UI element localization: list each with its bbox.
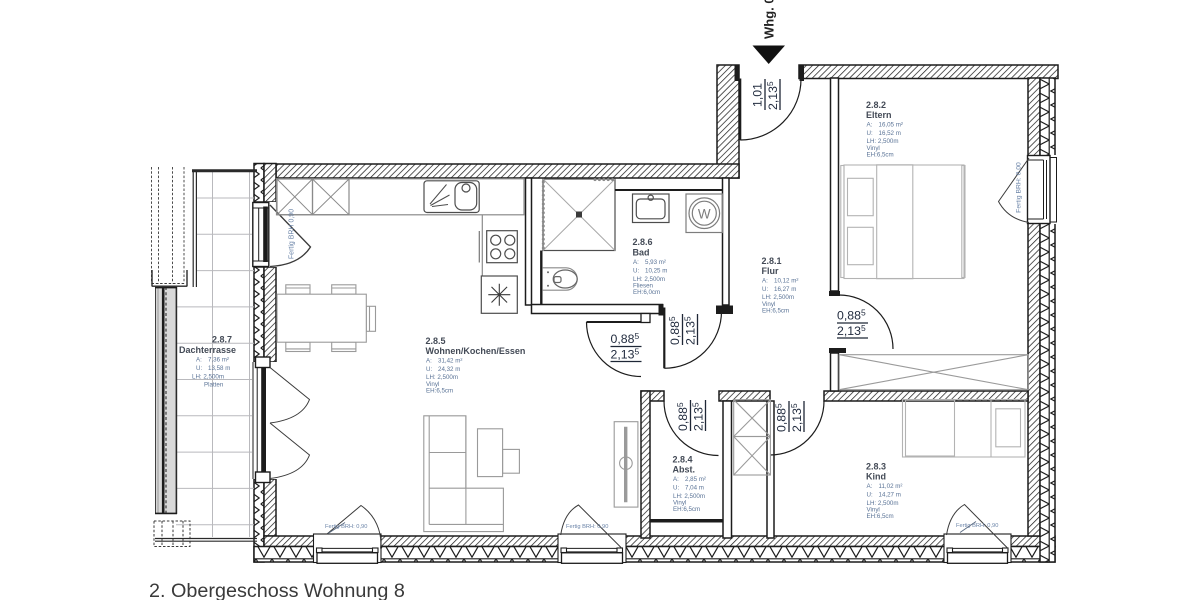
svg-text:24,32 m: 24,32 m	[438, 366, 460, 373]
svg-text:EH:6,5cm: EH:6,5cm	[673, 506, 700, 513]
svg-text:A:: A:	[673, 476, 679, 483]
svg-text:10,25 m: 10,25 m	[645, 267, 667, 274]
svg-text:2.8.6: 2.8.6	[633, 237, 653, 247]
svg-text:Platten: Platten	[204, 381, 224, 388]
svg-text:7,36 m²: 7,36 m²	[208, 357, 229, 364]
svg-text:5,93 m²: 5,93 m²	[645, 259, 666, 266]
svg-text:Fertig BRH 0,90: Fertig BRH 0,90	[289, 209, 296, 259]
svg-text:Flur: Flur	[762, 266, 779, 276]
svg-text:10,12 m²: 10,12 m²	[774, 277, 798, 284]
svg-text:16,27 m: 16,27 m	[774, 286, 796, 293]
svg-text:2.8.3: 2.8.3	[866, 462, 886, 472]
svg-text:7,04 m: 7,04 m	[685, 484, 704, 491]
svg-text:EH:6,5cm: EH:6,5cm	[426, 387, 453, 394]
svg-text:LH: 2,500m: LH: 2,500m	[192, 373, 224, 380]
svg-text:2.8.1: 2.8.1	[762, 256, 782, 266]
svg-text:U:: U:	[762, 286, 768, 293]
svg-text:Abst.: Abst.	[673, 465, 696, 475]
svg-text:2,85 m²: 2,85 m²	[685, 476, 706, 483]
svg-text:A:: A:	[867, 483, 873, 490]
svg-text:A:: A:	[633, 259, 639, 266]
svg-text:EH:6,0cm: EH:6,0cm	[633, 289, 660, 296]
svg-text:Fertig BRH: 0,90: Fertig BRH: 0,90	[956, 523, 998, 529]
svg-text:1,01: 1,01	[751, 83, 765, 107]
svg-text:A:: A:	[426, 357, 432, 364]
svg-text:U:: U:	[196, 365, 202, 372]
svg-text:Bad: Bad	[633, 248, 650, 258]
svg-text:U:: U:	[673, 484, 679, 491]
svg-text:EH:6,5cm: EH:6,5cm	[867, 151, 894, 158]
svg-text:U:: U:	[633, 267, 639, 274]
svg-text:U:: U:	[867, 491, 873, 498]
svg-text:2.8.2: 2.8.2	[866, 100, 886, 110]
svg-text:Fertig BRH: 0,00: Fertig BRH: 0,00	[1016, 162, 1023, 213]
svg-text:U:: U:	[426, 366, 432, 373]
svg-text:EH:6,5cm: EH:6,5cm	[867, 513, 894, 520]
svg-text:Whg. 08: Whg. 08	[762, 0, 777, 39]
svg-text:Dachterrasse: Dachterrasse	[179, 345, 236, 355]
svg-text:A:: A:	[762, 277, 768, 284]
svg-text:U:: U:	[867, 130, 873, 137]
svg-text:W: W	[698, 207, 711, 222]
svg-text:2.8.7: 2.8.7	[212, 335, 232, 345]
svg-text:Fertig BRH: 0,90: Fertig BRH: 0,90	[325, 524, 367, 530]
svg-text:Fertig BRH: 0,90: Fertig BRH: 0,90	[566, 524, 608, 530]
svg-text:2.8.5: 2.8.5	[426, 336, 446, 346]
svg-text:EH:6,5cm: EH:6,5cm	[762, 307, 789, 314]
svg-text:Kind: Kind	[866, 472, 886, 482]
svg-text:Eltern: Eltern	[866, 110, 892, 120]
svg-text:14,27 m: 14,27 m	[879, 491, 901, 498]
svg-text:31,42 m²: 31,42 m²	[438, 357, 462, 364]
svg-text:2.8.4: 2.8.4	[673, 455, 693, 465]
svg-text:A:: A:	[196, 357, 202, 364]
svg-text:16,05 m²: 16,05 m²	[879, 121, 903, 128]
svg-text:11,02 m²: 11,02 m²	[879, 483, 903, 490]
svg-text:16,52 m: 16,52 m	[879, 130, 901, 137]
svg-text:2. Obergeschoss Wohnung 8: 2. Obergeschoss Wohnung 8	[149, 580, 405, 600]
svg-text:Wohnen/Kochen/Essen: Wohnen/Kochen/Essen	[426, 346, 526, 356]
svg-text:13,58 m: 13,58 m	[208, 365, 230, 372]
svg-text:A:: A:	[867, 121, 873, 128]
